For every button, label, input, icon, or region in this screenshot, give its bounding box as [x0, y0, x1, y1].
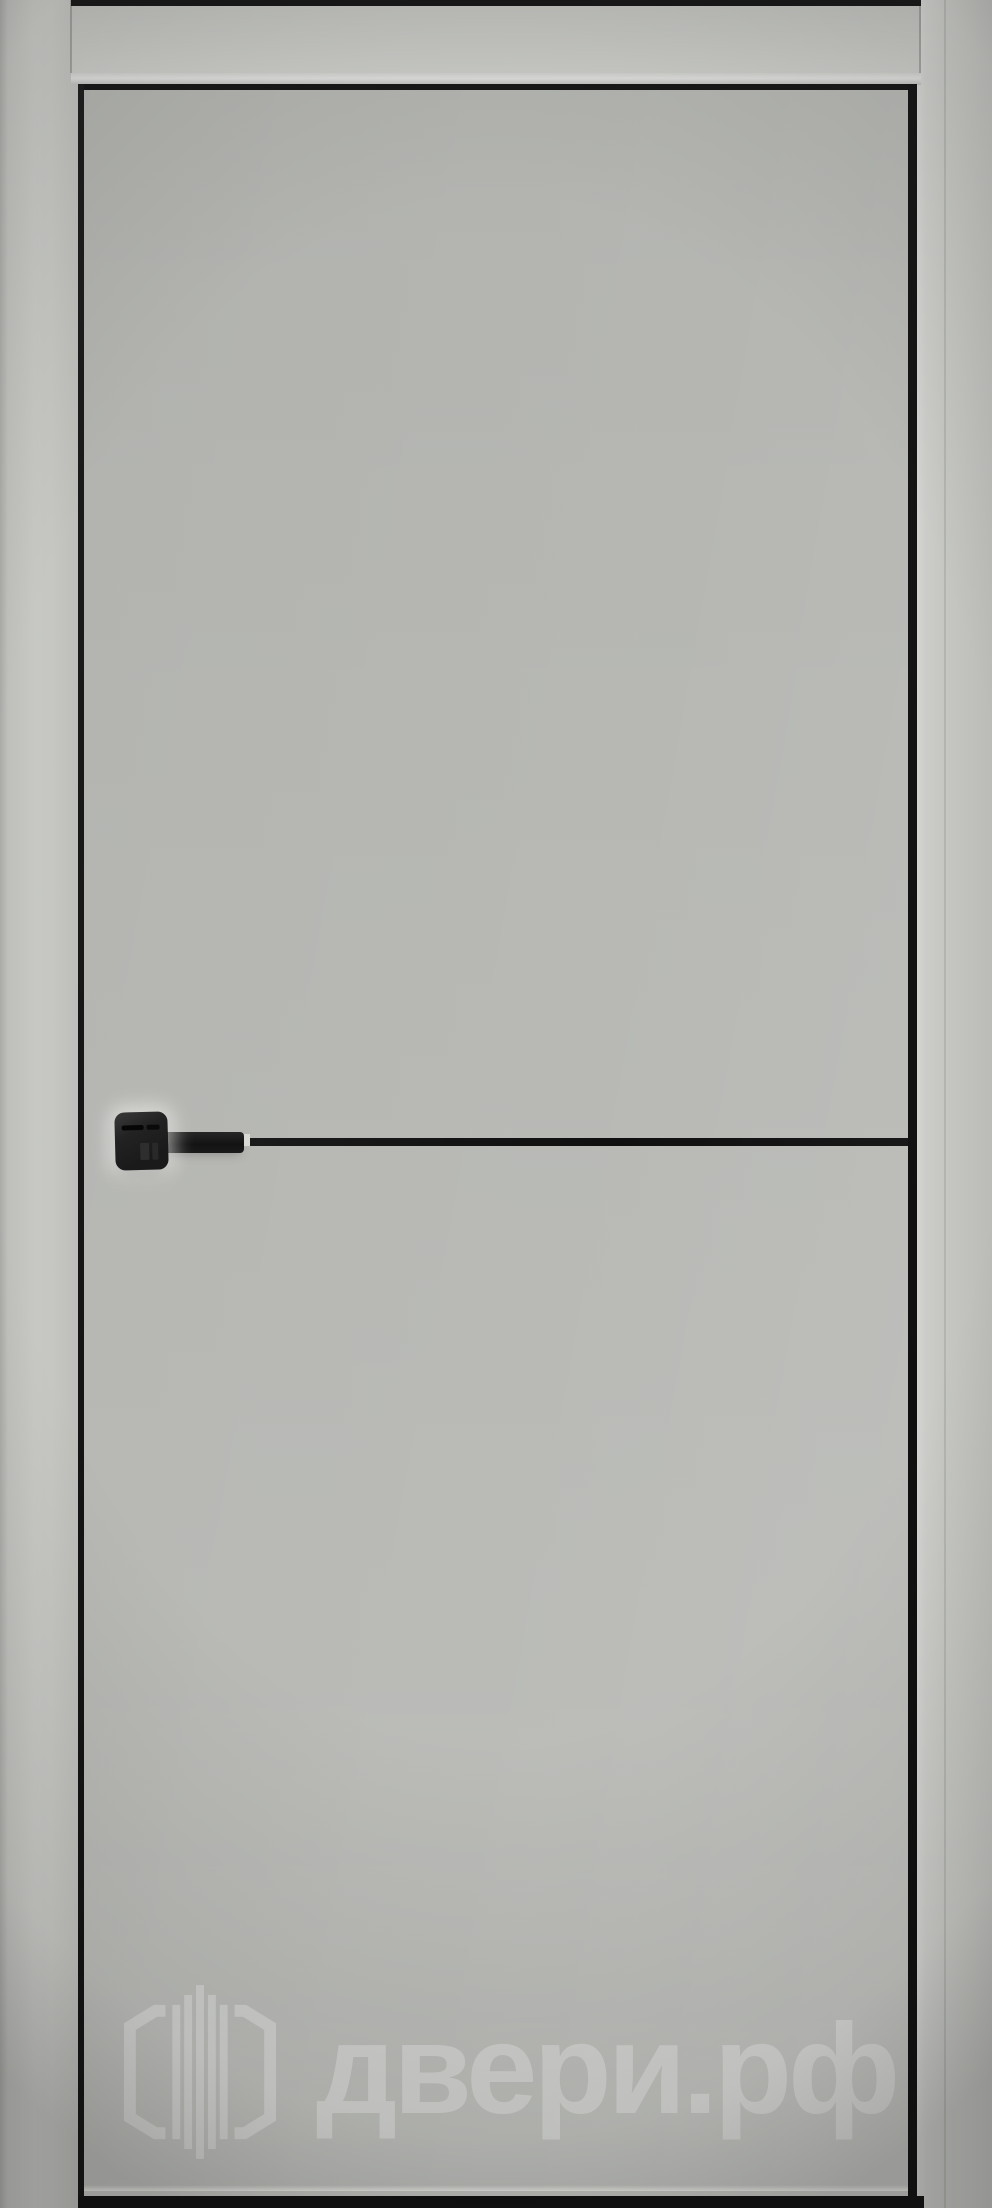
- header-seam-right: [919, 0, 921, 73]
- logo-stripe: [208, 1995, 216, 2149]
- door-edge-top: [78, 84, 916, 90]
- logo-right-bracket: [235, 2011, 271, 2133]
- door-edge-right: [908, 84, 917, 2196]
- door-molding-line: [250, 1138, 908, 1146]
- door-frame-header: [71, 0, 921, 73]
- lever-end-highlight: [244, 1134, 250, 1146]
- logo-stripe: [196, 1985, 204, 2159]
- dveri-rf-logo-icon: [120, 1982, 280, 2162]
- logo-stripe: [220, 2005, 228, 2139]
- door-frame-left-jamb: [0, 0, 78, 2208]
- leaf-bottom-edge-highlight: [84, 2185, 908, 2191]
- rosette-detail: [152, 1143, 158, 1160]
- logo-stripe: [172, 2005, 180, 2139]
- frame-top-shadow-gap: [71, 0, 921, 6]
- watermark-logo: [120, 1982, 280, 2162]
- watermark-text: двери.рф: [316, 2006, 896, 2134]
- rosette-detail: [140, 1143, 149, 1160]
- door-edge-left: [78, 84, 84, 2196]
- header-seam-left: [70, 0, 72, 73]
- handle-rosette: [114, 1111, 169, 1170]
- door-product-photo: двери.рф: [0, 0, 992, 2208]
- rosette-detail: [122, 1125, 144, 1131]
- door-frame-right-jamb: [916, 0, 992, 2208]
- door-bottom-shadow-gap: [78, 2196, 924, 2208]
- logo-stripe: [184, 1995, 192, 2149]
- logo-left-bracket: [130, 2011, 166, 2133]
- handle-lever: [160, 1132, 244, 1153]
- right-jamb-seam: [944, 0, 946, 2208]
- rosette-detail: [147, 1125, 160, 1130]
